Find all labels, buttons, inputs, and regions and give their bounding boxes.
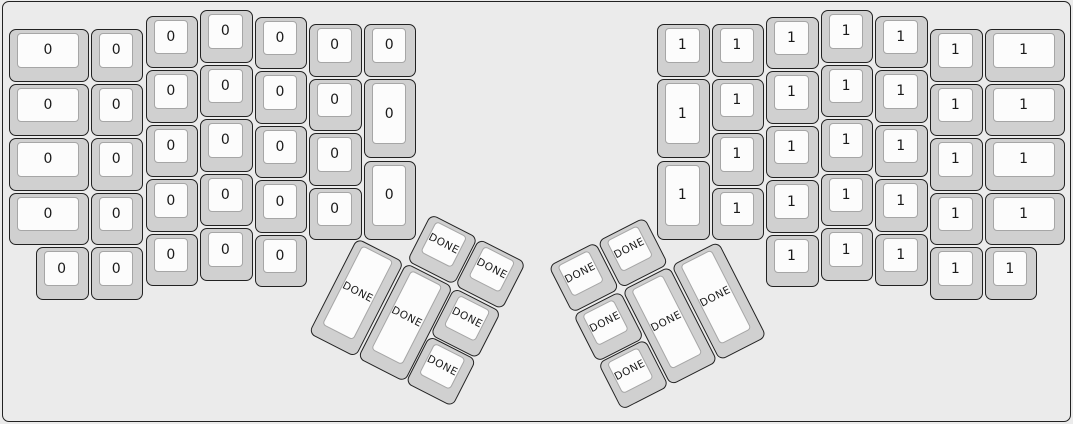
keycap-top: 0 [263, 130, 298, 165]
keycap-top: DONE [557, 250, 604, 297]
keycap-1[interactable]: 1 [821, 228, 874, 281]
keycap-top: 0 [44, 251, 79, 286]
keycap-top: 1 [720, 137, 755, 172]
keycap-label: 1 [1019, 98, 1028, 112]
keycap-top: 1 [993, 251, 1028, 286]
keycap-top: 1 [883, 74, 918, 109]
keycap-top: 0 [263, 21, 298, 56]
keycap-top: 1 [938, 197, 973, 232]
keycap-label: 0 [330, 147, 339, 161]
keycap-top: 1 [829, 178, 864, 213]
keycap-top: 0 [317, 192, 352, 227]
keycap-label: 0 [330, 93, 339, 107]
keycap-label: 0 [276, 31, 285, 45]
keycap-0[interactable]: 0 [146, 125, 199, 178]
keycap-label: 1 [896, 139, 905, 153]
keycap-label: 1 [896, 30, 905, 44]
keycap-1[interactable]: 1 [875, 70, 928, 123]
keycap-label: 1 [896, 84, 905, 98]
keycap-top: 1 [993, 197, 1055, 232]
keycap-0[interactable]: 0 [91, 138, 144, 191]
keycap-0[interactable]: 0 [91, 193, 144, 246]
keycap-label: 0 [221, 133, 230, 147]
keycap-0[interactable]: 0 [9, 193, 89, 246]
keycap-top: DONE [419, 343, 466, 390]
keycap-0[interactable]: 0 [255, 180, 308, 233]
keycap-top: 1 [665, 165, 700, 227]
keycap-label: 1 [678, 188, 687, 202]
keycap-top: 1 [720, 28, 755, 63]
keycap-0[interactable]: 0 [255, 126, 308, 179]
keycap-1[interactable]: 1 [712, 188, 765, 241]
keycap-top: 1 [938, 88, 973, 123]
keycap-1[interactable]: 1 [821, 174, 874, 227]
keycap-label: 0 [330, 202, 339, 216]
keycap-label: 1 [787, 85, 796, 99]
keycap-label: 1 [732, 38, 741, 52]
keycap-1[interactable]: 1 [821, 10, 874, 63]
keycap-top: DONE [606, 226, 653, 273]
keycap-top: 0 [208, 69, 243, 104]
keycap-0[interactable]: 0 [9, 29, 89, 82]
keycap-label: DONE [613, 359, 647, 383]
keycap-label: 0 [112, 98, 121, 112]
keycap-1[interactable]: 1 [766, 235, 819, 288]
keycap-top: 0 [99, 142, 134, 177]
keycap-label: DONE [698, 285, 732, 309]
keycap-label: 0 [112, 262, 121, 276]
keycap-top: DONE [444, 294, 491, 341]
keycap-top: 0 [99, 33, 134, 68]
keycap-top: DONE [469, 246, 516, 293]
keycap-label: 0 [276, 195, 285, 209]
keycap-top: DONE [607, 348, 654, 395]
keycap-0[interactable]: 0 [364, 24, 417, 77]
keycap-label: 1 [1005, 262, 1014, 276]
keycap-top: 1 [720, 83, 755, 118]
keycap-label: 0 [44, 207, 53, 221]
keycap-top: 1 [883, 20, 918, 55]
keycap-label: DONE [426, 232, 460, 256]
keycap-top: 1 [829, 14, 864, 49]
keycap-1[interactable]: 1 [930, 138, 983, 191]
keycap-top: 1 [829, 232, 864, 267]
keycap-top: 0 [208, 123, 243, 158]
keycap-0[interactable]: 0 [91, 247, 144, 300]
keycap-top: 1 [883, 129, 918, 164]
keycap-label: 1 [787, 195, 796, 209]
keycap-top: 1 [938, 33, 973, 68]
keycap-label: 1 [1019, 207, 1028, 221]
keycap-top: 1 [774, 21, 809, 56]
keycap-label: 0 [385, 188, 394, 202]
keycap-label: 0 [221, 24, 230, 38]
keycap-label: 1 [732, 202, 741, 216]
keycap-0[interactable]: 0 [309, 79, 362, 132]
keycap-1[interactable]: 1 [985, 29, 1065, 82]
keycap-label: 1 [951, 152, 960, 166]
keycap-top: 1 [829, 123, 864, 158]
keycap-top: DONE [420, 221, 467, 268]
keycap-1[interactable]: 1 [712, 24, 765, 77]
keycap-label: 0 [221, 79, 230, 93]
keycap-top: 0 [317, 28, 352, 63]
keycap-label: 0 [330, 38, 339, 52]
keycap-1[interactable]: 1 [766, 71, 819, 124]
keycap-label: 1 [842, 133, 851, 147]
keycap-1[interactable]: 1 [875, 234, 928, 287]
keycap-0[interactable]: 0 [255, 71, 308, 124]
keycap-1[interactable]: 1 [875, 16, 928, 69]
keycap-label: DONE [425, 354, 459, 378]
keycap-label: 1 [678, 38, 687, 52]
keycap-label: 1 [1019, 152, 1028, 166]
keycap-label: 1 [951, 207, 960, 221]
keycap-1[interactable]: 1 [985, 193, 1065, 246]
keycap-label: 1 [787, 31, 796, 45]
keycap-0[interactable]: 0 [200, 10, 253, 63]
keycap-1[interactable]: 1 [657, 161, 710, 241]
keycap-0[interactable]: 0 [200, 65, 253, 118]
keycap-top: 0 [317, 137, 352, 172]
keycap-1[interactable]: 1 [875, 125, 928, 178]
keycap-0[interactable]: 0 [364, 161, 417, 241]
keycap-label: 0 [221, 243, 230, 257]
keycap-top: 0 [17, 88, 79, 123]
keycap-label: 0 [44, 43, 53, 57]
keycap-label: 0 [112, 43, 121, 57]
keycap-top: 0 [208, 232, 243, 267]
keycap-label: DONE [588, 310, 622, 334]
keycap-1[interactable]: 1 [875, 179, 928, 232]
keycap-top: 1 [993, 33, 1055, 68]
keycap-1[interactable]: 1 [766, 17, 819, 70]
keycap-0[interactable]: 0 [146, 70, 199, 123]
keycap-top: 0 [372, 83, 407, 145]
keycap-label: DONE [450, 305, 484, 329]
keycap-top: 0 [263, 75, 298, 110]
keycap-top: 0 [154, 20, 189, 55]
keycap-1[interactable]: 1 [930, 84, 983, 137]
keycap-top: 0 [154, 183, 189, 218]
keycap-label: 0 [276, 140, 285, 154]
keycap-top: 0 [17, 142, 79, 177]
keycap-top: 0 [17, 197, 79, 232]
keycap-0[interactable]: 0 [309, 24, 362, 77]
keycap-top: 1 [993, 142, 1055, 177]
keycap-0[interactable]: 0 [91, 84, 144, 137]
keycap-0[interactable]: 0 [200, 228, 253, 281]
keycap-1[interactable]: 1 [930, 193, 983, 246]
keycap-top: 0 [154, 238, 189, 273]
keycap-label: 1 [678, 107, 687, 121]
keycap-label: 1 [951, 43, 960, 57]
keycap-1[interactable]: 1 [985, 247, 1038, 300]
keycap-label: 1 [842, 24, 851, 38]
keycap-top: 0 [263, 239, 298, 274]
keycap-label: 1 [842, 188, 851, 202]
keycap-label: DONE [564, 261, 598, 285]
keycap-1[interactable]: 1 [657, 24, 710, 77]
keycap-label: DONE [389, 305, 423, 329]
keycap-top: 0 [154, 129, 189, 164]
keycap-label: 0 [112, 207, 121, 221]
keycap-label: 1 [787, 140, 796, 154]
keycap-top: 1 [938, 142, 973, 177]
keycap-label: DONE [340, 280, 374, 304]
keycap-top: 1 [829, 69, 864, 104]
keycap-top: 0 [317, 83, 352, 118]
keycap-label: 0 [112, 152, 121, 166]
keycap-1[interactable]: 1 [821, 65, 874, 118]
keycap-top: 1 [720, 192, 755, 227]
keycap-1[interactable]: 1 [985, 138, 1065, 191]
keycap-label: 0 [166, 248, 175, 262]
keycap-top: 0 [17, 33, 79, 68]
keycap-top: 1 [774, 130, 809, 165]
keycap-label: 0 [57, 262, 66, 276]
keycap-0[interactable]: 0 [146, 179, 199, 232]
keycap-1[interactable]: 1 [985, 84, 1065, 137]
keycap-label: 1 [842, 79, 851, 93]
keycap-1[interactable]: 1 [930, 247, 983, 300]
keycap-1[interactable]: 1 [712, 79, 765, 132]
keycap-top: 0 [263, 184, 298, 219]
keycap-label: 0 [385, 38, 394, 52]
keycap-label: DONE [650, 310, 684, 334]
keycap-label: 0 [44, 98, 53, 112]
keycap-top: 0 [372, 165, 407, 227]
keycap-top: 1 [774, 184, 809, 219]
keycap-top: 0 [99, 197, 134, 232]
keycap-top: 0 [154, 74, 189, 109]
keycap-label: DONE [475, 257, 509, 281]
keycap-top: 1 [665, 28, 700, 63]
keycap-label: 0 [276, 249, 285, 263]
keycap-0[interactable]: 0 [200, 119, 253, 172]
keycap-1[interactable]: 1 [766, 180, 819, 233]
keycap-1[interactable]: 1 [657, 79, 710, 159]
keycap-label: 0 [166, 84, 175, 98]
keycap-label: DONE [612, 237, 646, 261]
keycap-0[interactable]: 0 [200, 174, 253, 227]
keycap-1[interactable]: 1 [930, 29, 983, 82]
keycap-label: 1 [732, 93, 741, 107]
keycap-label: 0 [166, 139, 175, 153]
keycap-label: 1 [732, 147, 741, 161]
keycap-label: 1 [1019, 43, 1028, 57]
keycap-top: 0 [372, 28, 407, 63]
keycap-top: 1 [883, 238, 918, 273]
keycap-top: 1 [774, 239, 809, 274]
keycap-top: DONE [582, 299, 629, 346]
keycap-top: 1 [993, 88, 1055, 123]
keycap-1[interactable]: 1 [712, 133, 765, 186]
keycap-top: 0 [208, 178, 243, 213]
keycap-0[interactable]: 0 [9, 138, 89, 191]
keycap-label: 0 [276, 85, 285, 99]
keycap-0[interactable]: 0 [255, 17, 308, 70]
keycap-top: 1 [774, 75, 809, 110]
keycap-0[interactable]: 0 [9, 84, 89, 137]
keycap-0[interactable]: 0 [364, 79, 417, 159]
keycap-top: 0 [99, 251, 134, 286]
keycap-0[interactable]: 0 [309, 133, 362, 186]
keycap-0[interactable]: 0 [146, 234, 199, 287]
keyboard-layout-canvas: 00000000000000000000000000000000DONEDONE… [0, 0, 1073, 424]
keycap-0[interactable]: 0 [146, 16, 199, 69]
keycap-label: 0 [166, 30, 175, 44]
keycap-label: 0 [44, 152, 53, 166]
keycap-label: 0 [221, 188, 230, 202]
keycap-0[interactable]: 0 [91, 29, 144, 82]
keycap-1[interactable]: 1 [821, 119, 874, 172]
keycap-label: 1 [951, 98, 960, 112]
keycap-top: 1 [938, 251, 973, 286]
keycap-label: 0 [166, 194, 175, 208]
keycap-label: 1 [842, 243, 851, 257]
keycap-label: 1 [787, 249, 796, 263]
keycap-label: 1 [896, 194, 905, 208]
keycap-0[interactable]: 0 [309, 188, 362, 241]
keycap-1[interactable]: 1 [766, 126, 819, 179]
keycap-label: 1 [951, 262, 960, 276]
keycap-label: 1 [896, 248, 905, 262]
keycap-top: 1 [883, 183, 918, 218]
keycap-0[interactable]: 0 [36, 247, 89, 300]
keycap-top: 0 [99, 88, 134, 123]
keycap-label: 0 [385, 107, 394, 121]
keycap-top: 0 [208, 14, 243, 49]
keycap-0[interactable]: 0 [255, 235, 308, 288]
keycap-top: 1 [665, 83, 700, 145]
